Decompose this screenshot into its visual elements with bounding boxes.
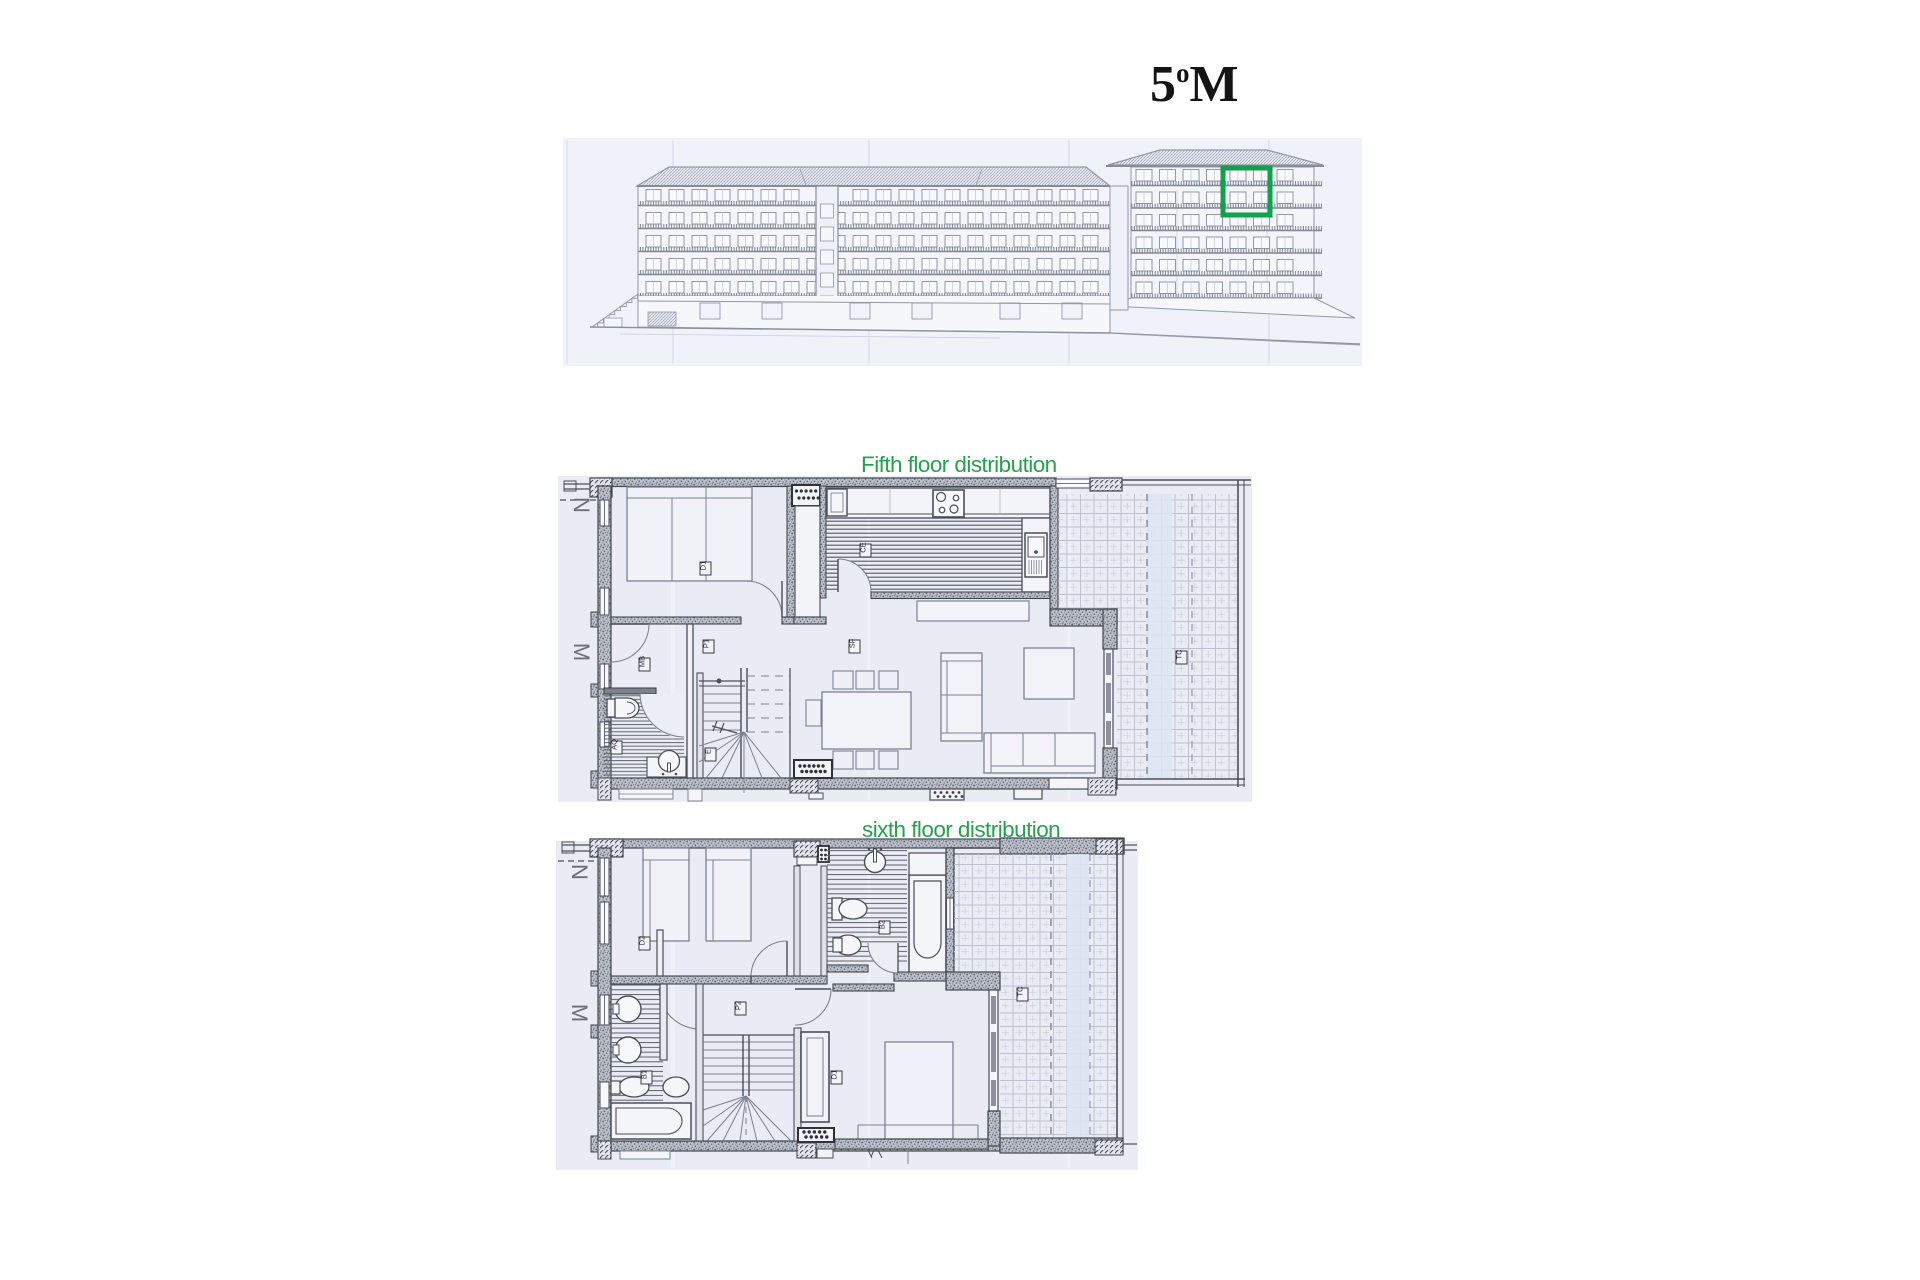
svg-text:D1: D1 bbox=[830, 1070, 839, 1080]
svg-text:TC: TC bbox=[1016, 986, 1025, 997]
svg-text:AQ: AQ bbox=[610, 739, 619, 750]
svg-text:CE: CE bbox=[859, 542, 868, 552]
svg-text:5oM: 5oM bbox=[1150, 56, 1239, 113]
svg-text:D2: D2 bbox=[638, 936, 647, 946]
svg-text:Fifth floor distribution: Fifth floor distribution bbox=[861, 452, 1057, 477]
svg-text:SF: SF bbox=[848, 638, 857, 648]
svg-text:P1: P1 bbox=[702, 639, 711, 648]
svg-text:M: M bbox=[567, 1004, 592, 1022]
svg-text:TC: TC bbox=[1175, 649, 1184, 660]
svg-text:N: N bbox=[567, 864, 592, 880]
svg-text:E: E bbox=[704, 749, 713, 754]
svg-text:N: N bbox=[569, 497, 594, 513]
svg-text:P2: P2 bbox=[734, 1001, 743, 1010]
svg-text:MB: MB bbox=[638, 656, 647, 667]
svg-text:B1: B1 bbox=[640, 1070, 649, 1079]
svg-text:D1: D1 bbox=[699, 561, 708, 571]
svg-text:M: M bbox=[569, 643, 594, 661]
svg-text:B2: B2 bbox=[878, 920, 887, 929]
